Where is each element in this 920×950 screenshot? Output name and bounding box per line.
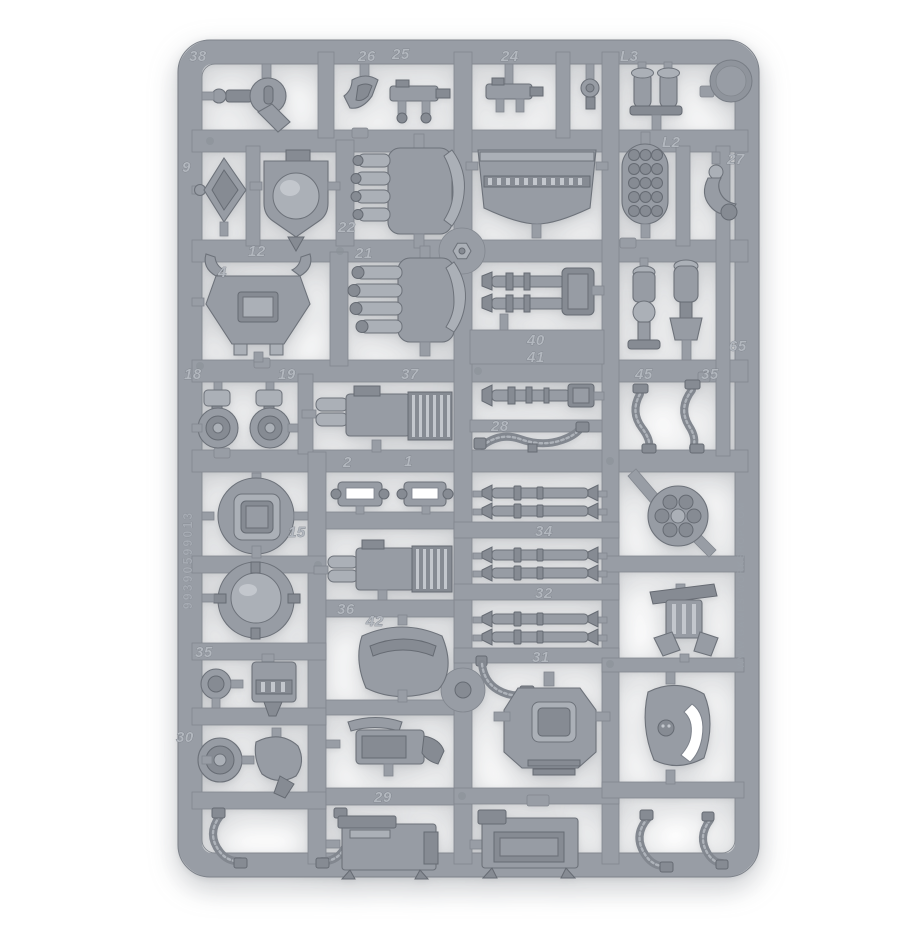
part-vent-box xyxy=(252,654,296,716)
part-breastplate xyxy=(192,254,311,362)
part-number-label: 41 xyxy=(526,349,545,366)
part-round-hatch xyxy=(198,738,254,782)
part-number-label: 24 xyxy=(500,48,519,65)
frame-bar xyxy=(556,52,570,138)
part-number-label: 22 xyxy=(337,219,356,236)
part-number-label: 1 xyxy=(404,453,413,470)
part-piston-a xyxy=(628,258,660,349)
part-number-label: 40 xyxy=(526,332,545,349)
part-revolver-drum xyxy=(628,469,716,557)
part-shoulder-pad-small xyxy=(255,728,301,798)
part-number-label: 30 xyxy=(176,729,194,746)
frame-bar xyxy=(676,146,690,246)
part-storm-bolter-a xyxy=(390,80,450,123)
part-number-label: 21 xyxy=(354,245,373,262)
part-ribbed-cable-b xyxy=(684,380,704,453)
part-piston-b xyxy=(670,260,702,360)
part-twin-autocannon xyxy=(482,268,604,330)
frame-bar xyxy=(602,556,744,572)
ejector-pin-mark xyxy=(206,137,214,145)
part-u-bracket xyxy=(650,584,718,662)
sprue-image: 38 26 25 24 L3 L2 27 9 12 22 21 4 40 41 … xyxy=(0,0,920,950)
part-number-label: 42 xyxy=(365,613,384,630)
frame-tab xyxy=(352,128,368,138)
part-number-label: 19 xyxy=(278,366,296,383)
part-number-label: 34 xyxy=(535,523,553,540)
part-ribbed-cable-a xyxy=(633,384,656,453)
part-number-label: 27 xyxy=(726,151,745,168)
part-number-label: 65 xyxy=(729,338,747,355)
frame-tab xyxy=(620,238,636,248)
part-gun-casing xyxy=(326,718,444,777)
part-number-label: 38 xyxy=(189,48,207,65)
frame-bar xyxy=(192,708,326,725)
part-number-label: 15 xyxy=(288,524,306,541)
frame-bar xyxy=(602,658,744,672)
ejector-pin-mark xyxy=(474,367,482,375)
part-number-label: 37 xyxy=(401,366,419,383)
part-number-label: 25 xyxy=(391,46,410,63)
frame-bar xyxy=(326,512,454,529)
sprue-hub-bottom xyxy=(441,668,485,712)
part-number-label: 35 xyxy=(701,366,719,383)
frame-bar xyxy=(326,700,454,715)
product-photo: 38 26 25 24 L3 L2 27 9 12 22 21 4 40 41 … xyxy=(0,0,920,950)
mold-stamp-disc xyxy=(710,60,752,102)
frame-bar xyxy=(246,146,260,246)
part-number-label: 2 xyxy=(342,454,352,471)
frame-bar xyxy=(192,792,326,809)
frame-bar xyxy=(318,52,334,138)
part-number-label: 18 xyxy=(184,366,202,383)
part-wheel-piston-b xyxy=(250,382,298,448)
part-storm-bolter-b xyxy=(486,64,543,112)
part-number-label: 4 xyxy=(217,264,227,281)
part-sarcophagus-front xyxy=(250,150,340,251)
part-cannon-barrel xyxy=(482,384,604,407)
part-ammo-crate-left xyxy=(326,816,438,879)
ejector-pin-mark xyxy=(606,457,614,465)
part-clamp-b xyxy=(397,482,453,514)
part-carapace-plate xyxy=(466,150,608,238)
part-barrel-pairs xyxy=(473,485,607,645)
part-ball-socket xyxy=(202,562,300,639)
manufacturer-url-text: WWW.GAMES-WORKSHOP.COM xyxy=(736,501,746,668)
part-number-label: 36 xyxy=(337,601,355,618)
part-number-label: L2 xyxy=(662,134,681,151)
ejector-pin-mark xyxy=(458,792,466,800)
part-powerfist-fingers xyxy=(348,246,466,356)
ejector-pin-mark xyxy=(336,247,344,255)
part-number-label: 35 xyxy=(195,644,213,661)
part-clamp-a xyxy=(331,482,389,514)
part-hex-sarcophagus xyxy=(494,672,610,775)
frame-bar xyxy=(602,782,744,798)
part-wedge-bracket xyxy=(344,64,378,108)
frame-bar xyxy=(330,252,348,366)
ejector-pin-mark xyxy=(606,660,614,668)
part-number-label: 45 xyxy=(634,366,653,383)
part-multi-melta xyxy=(302,386,452,452)
part-number-label: 12 xyxy=(248,243,266,260)
part-number-label: 29 xyxy=(373,789,392,806)
part-lens xyxy=(581,64,599,109)
part-number-label: 28 xyxy=(490,418,509,435)
part-twin-exhaust xyxy=(630,62,682,130)
product-code-text: 99390599013 xyxy=(181,511,195,609)
part-small-disc xyxy=(201,669,243,708)
part-number-label: 26 xyxy=(357,48,376,65)
part-dome-port xyxy=(202,473,308,558)
part-number-label: 31 xyxy=(532,649,550,666)
part-number-label: 32 xyxy=(535,585,553,602)
part-number-label: 9 xyxy=(182,159,191,176)
part-number-label: L3 xyxy=(620,48,639,65)
part-ammo-crate-right xyxy=(470,810,578,878)
part-pistol-dome xyxy=(202,64,290,132)
part-heavy-gun xyxy=(314,540,452,600)
frame-tab xyxy=(214,448,230,458)
frame-tab xyxy=(527,795,549,806)
part-skull-pauldron xyxy=(645,672,710,784)
